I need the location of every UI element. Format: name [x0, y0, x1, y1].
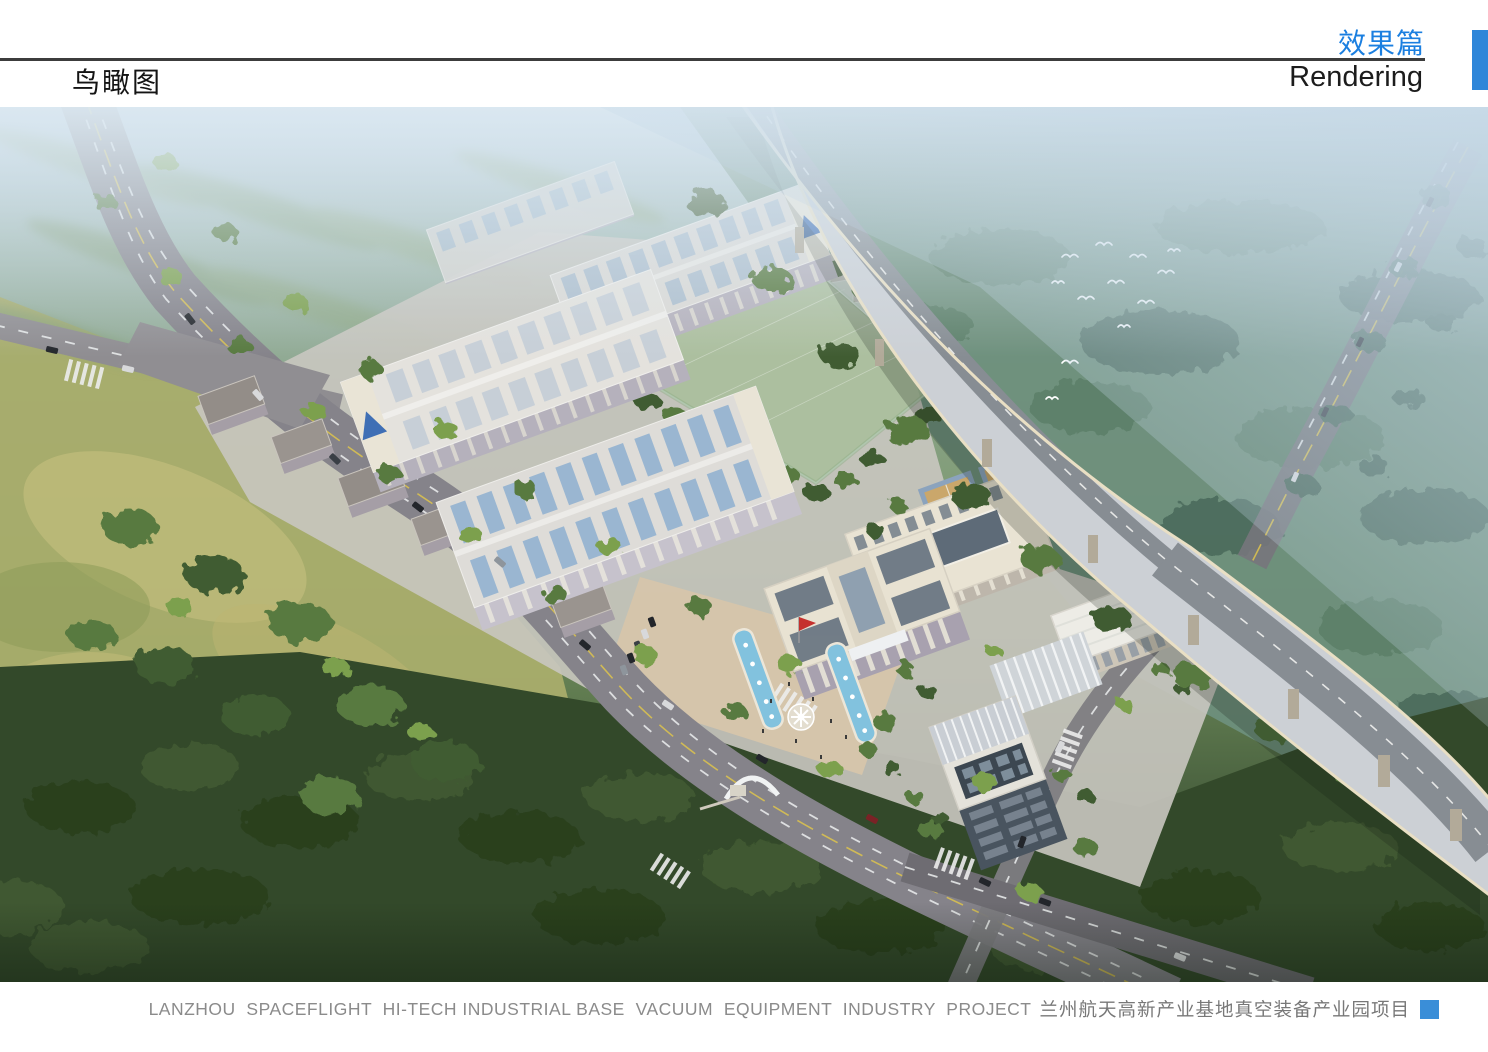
caption: LANZHOU SPACEFLIGHT HI-TECH INDUSTRIAL B…	[149, 996, 1439, 1022]
presentation-slide: 鸟瞰图 效果篇 Rendering	[0, 0, 1488, 1052]
central-sculpture	[788, 704, 814, 730]
caption-chinese: 兰州航天高新产业基地真空装备产业园项目	[1039, 996, 1410, 1022]
section-title-cn: 效果篇	[1338, 22, 1425, 62]
page-title: 鸟瞰图	[72, 61, 162, 101]
rendering-image	[0, 107, 1488, 982]
caption-marker	[1420, 1000, 1439, 1019]
header-rule	[0, 58, 1425, 61]
section-title-en: Rendering	[1289, 61, 1423, 94]
page-tab-marker	[1472, 30, 1488, 90]
caption-english: LANZHOU SPACEFLIGHT HI-TECH INDUSTRIAL B…	[149, 999, 1032, 1020]
